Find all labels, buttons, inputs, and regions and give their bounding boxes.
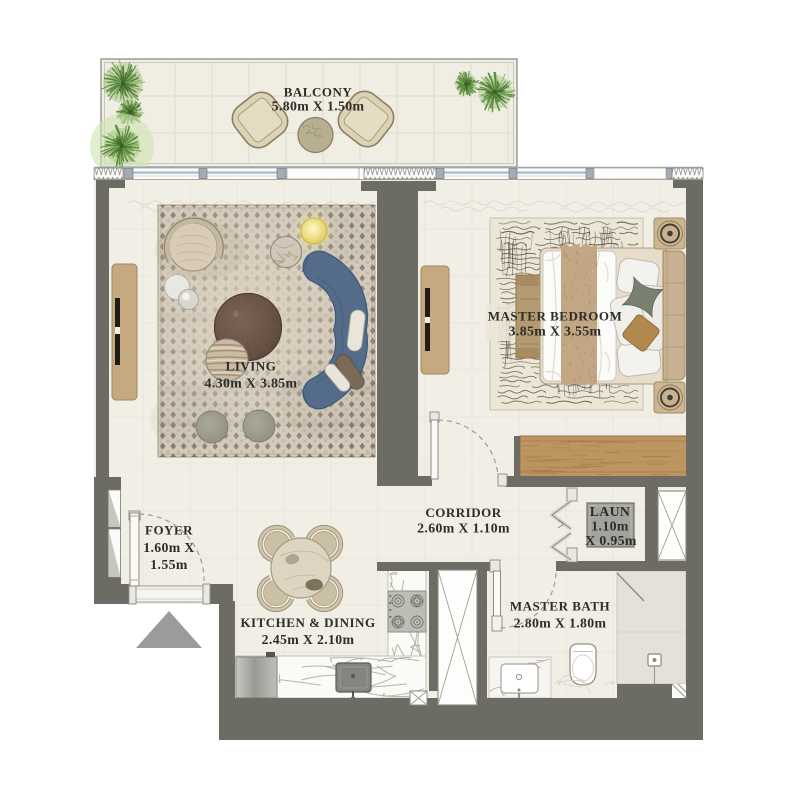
- svg-text:LIVING: LIVING: [226, 358, 277, 373]
- svg-text:1.10m: 1.10m: [591, 518, 629, 533]
- svg-text:4.30m X 3.85m: 4.30m X 3.85m: [205, 375, 298, 390]
- svg-text:MASTER BEDROOM: MASTER BEDROOM: [488, 308, 622, 323]
- svg-text:1.60m X: 1.60m X: [143, 540, 195, 555]
- svg-text:KITCHEN & DINING: KITCHEN & DINING: [240, 615, 375, 630]
- svg-text:X 0.95m: X 0.95m: [585, 533, 637, 548]
- svg-text:5.80m X 1.50m: 5.80m X 1.50m: [272, 99, 365, 114]
- svg-text:FOYER: FOYER: [145, 523, 193, 538]
- svg-text:3.85m X 3.55m: 3.85m X 3.55m: [509, 324, 602, 339]
- svg-text:MASTER BATH: MASTER BATH: [510, 598, 610, 613]
- svg-text:CORRIDOR: CORRIDOR: [425, 505, 501, 520]
- svg-text:1.55m: 1.55m: [150, 557, 188, 572]
- svg-text:LAUN: LAUN: [590, 504, 631, 519]
- svg-text:2.80m X 1.80m: 2.80m X 1.80m: [514, 615, 607, 630]
- svg-text:2.45m X 2.10m: 2.45m X 2.10m: [262, 632, 355, 647]
- svg-text:BALCONY: BALCONY: [284, 84, 353, 99]
- svg-text:2.60m X 1.10m: 2.60m X 1.10m: [417, 521, 510, 536]
